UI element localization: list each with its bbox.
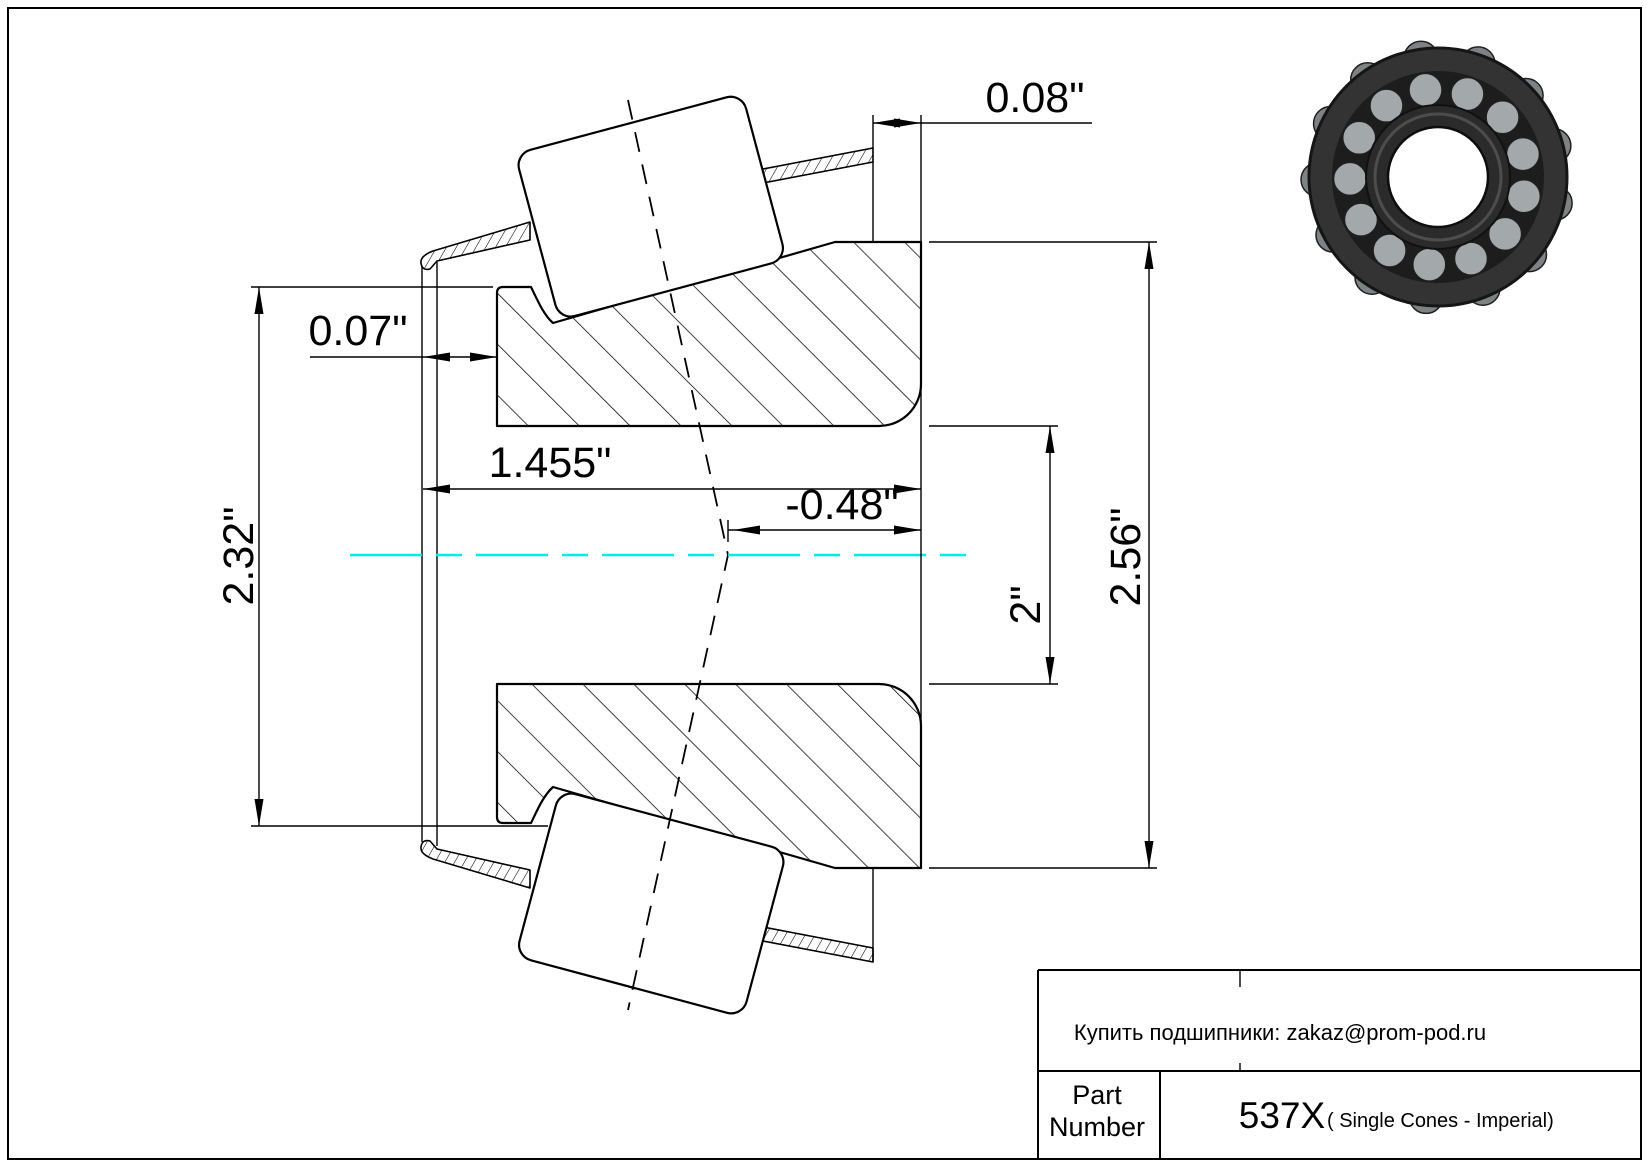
bearing-photo-ring [1388, 127, 1488, 227]
dim-load-center: -0.48" [728, 481, 921, 542]
contact-email-text: Купить подшипники: zakaz@prom-pod.ru [1074, 1020, 1486, 1045]
dim-label-2: 2" [1002, 585, 1050, 624]
dim-label-007: 0.07" [309, 307, 408, 355]
cage-strip-lower-right [758, 926, 873, 962]
bearing-photo-roller [1454, 242, 1487, 275]
part-label-line1: Part [1072, 1080, 1122, 1110]
bearing-photo [1301, 41, 1572, 313]
cage-strip-upper-right [758, 148, 873, 184]
drawing-page: 0.08" 0.07" 1.455" -0.48" [0, 0, 1649, 1167]
dim-front-clearance: 0.07" [309, 307, 497, 362]
title-block-text: Купить подшипники: zakaz@prom-pod.ru Par… [1049, 1020, 1554, 1142]
dim-label-232: 2.32" [215, 507, 263, 606]
bearing-photo-roller [1506, 138, 1539, 171]
dim-label-048: -0.48" [785, 481, 898, 529]
drawing-canvas: 0.08" 0.07" 1.455" -0.48" [0, 0, 1649, 1167]
part-number-value: 537X [1239, 1095, 1325, 1136]
bearing-photo-roller [1507, 180, 1540, 213]
bearing-photo-roller [1334, 162, 1367, 195]
bearing-photo-roller [1409, 73, 1442, 106]
dim-label-008: 0.08" [986, 74, 1085, 122]
cage-strip-lower-left [421, 841, 530, 888]
part-label-line2: Number [1049, 1112, 1145, 1142]
dim-label-256: 2.56" [1102, 508, 1150, 607]
part-series-label: ( Single Cones - Imperial) [1327, 1110, 1554, 1132]
bearing-photo-roller [1413, 248, 1446, 281]
bearing-photo-roller [1451, 78, 1484, 111]
section-view [350, 93, 966, 1017]
dim-label-1455: 1.455" [489, 439, 612, 487]
